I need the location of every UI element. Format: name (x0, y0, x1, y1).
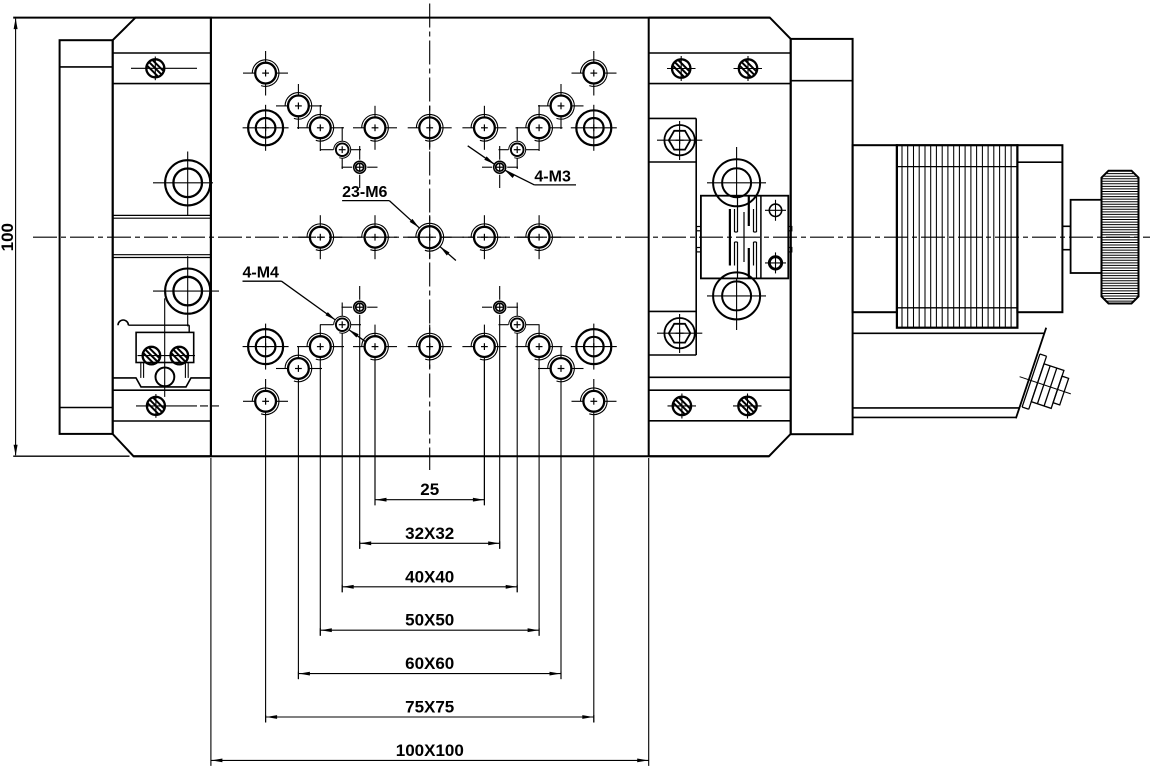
svg-text:60X60: 60X60 (405, 654, 454, 673)
svg-text:50X50: 50X50 (405, 611, 454, 630)
svg-text:100: 100 (0, 223, 17, 251)
svg-text:4-M3: 4-M3 (534, 168, 571, 185)
svg-text:100X100: 100X100 (396, 741, 464, 760)
svg-text:25: 25 (420, 480, 439, 499)
svg-text:32X32: 32X32 (405, 524, 454, 543)
svg-text:23-M6: 23-M6 (342, 184, 387, 201)
svg-text:4-M4: 4-M4 (243, 265, 280, 282)
svg-text:40X40: 40X40 (405, 567, 454, 586)
svg-text:75X75: 75X75 (405, 698, 454, 717)
